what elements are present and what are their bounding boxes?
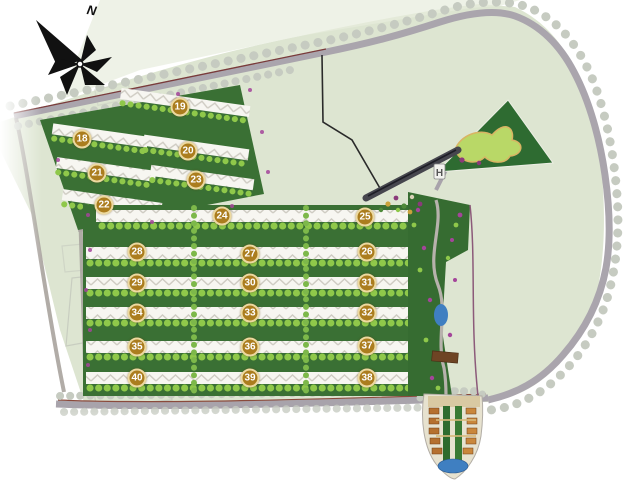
building-marker[interactable]: 28	[128, 243, 147, 262]
building-marker[interactable]: 21	[88, 164, 107, 183]
building-number: 18	[76, 132, 87, 147]
building-number: 25	[359, 210, 370, 225]
building-number: 19	[174, 100, 185, 115]
building-number: 34	[131, 306, 142, 321]
building-marker[interactable]: 39	[241, 369, 260, 388]
building-marker[interactable]: 30	[241, 274, 260, 293]
building-marker[interactable]: 20	[179, 142, 198, 161]
building-number: 23	[190, 173, 201, 188]
building-marker[interactable]: 38	[358, 369, 377, 388]
building-marker[interactable]: 25	[356, 208, 375, 227]
building-marker[interactable]: 22	[95, 196, 114, 215]
building-number: 31	[361, 276, 372, 291]
building-markers: 18 19 20 21 22 23 24 25 26 27 28 29 30 3…	[0, 0, 640, 480]
building-number: 28	[131, 245, 142, 260]
building-number: 20	[182, 144, 193, 159]
building-number: 32	[361, 306, 372, 321]
building-marker[interactable]: 18	[73, 130, 92, 149]
building-number: 39	[244, 371, 255, 386]
building-number: 27	[244, 247, 255, 262]
building-number: 30	[244, 276, 255, 291]
building-marker[interactable]: 37	[358, 337, 377, 356]
building-number: 37	[361, 339, 372, 354]
building-marker[interactable]: 40	[128, 369, 147, 388]
building-marker[interactable]: 27	[241, 245, 260, 264]
building-marker[interactable]: 26	[358, 243, 377, 262]
building-number: 38	[361, 371, 372, 386]
building-marker[interactable]: 34	[128, 304, 147, 323]
building-number: 24	[216, 209, 227, 224]
building-number: 22	[98, 198, 109, 213]
building-marker[interactable]: 19	[171, 98, 190, 117]
building-number: 26	[361, 245, 372, 260]
building-number: 40	[131, 371, 142, 386]
site-plan: H N 18	[0, 0, 640, 480]
building-number: 21	[91, 166, 102, 181]
building-marker[interactable]: 31	[358, 274, 377, 293]
building-marker[interactable]: 29	[128, 274, 147, 293]
building-marker[interactable]: 32	[358, 304, 377, 323]
building-marker[interactable]: 23	[187, 171, 206, 190]
building-marker[interactable]: 36	[241, 338, 260, 357]
building-marker[interactable]: 24	[213, 207, 232, 226]
building-number: 29	[131, 276, 142, 291]
building-marker[interactable]: 35	[128, 338, 147, 357]
building-number: 33	[244, 306, 255, 321]
building-number: 35	[131, 340, 142, 355]
building-number: 36	[244, 340, 255, 355]
building-marker[interactable]: 33	[241, 304, 260, 323]
